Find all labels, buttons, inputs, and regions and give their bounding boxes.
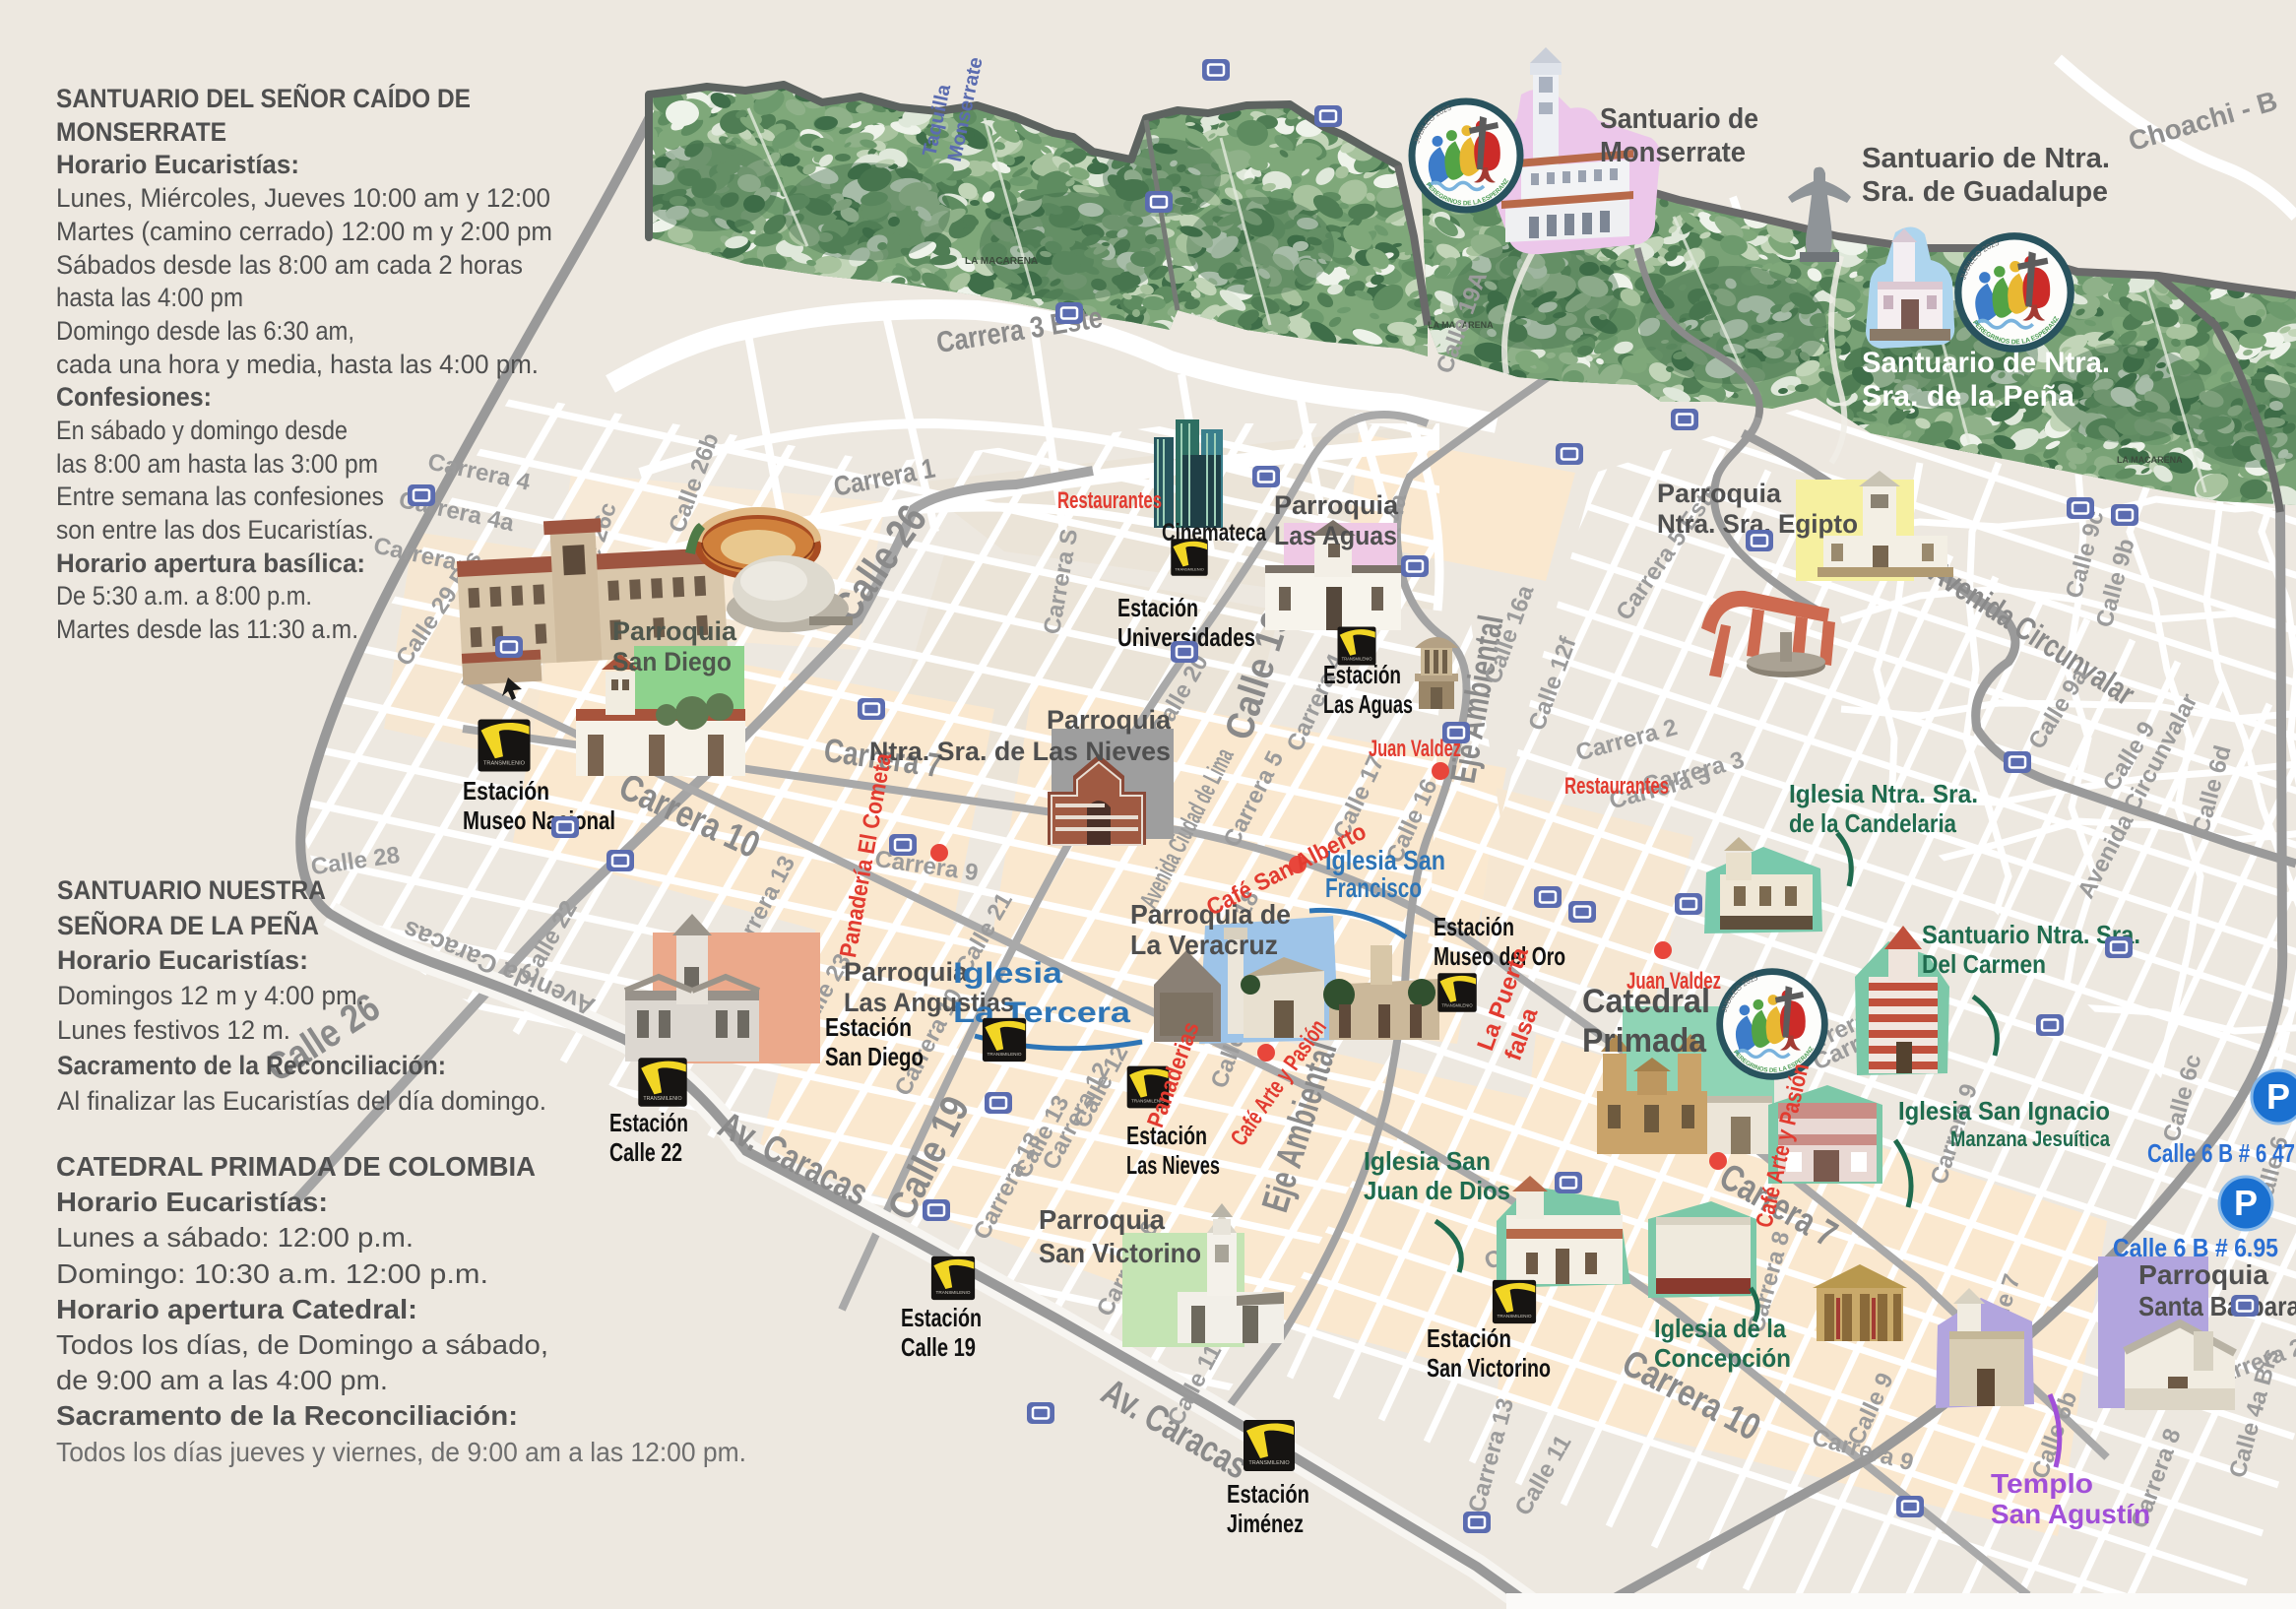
- svg-text:Santa Bárbara: Santa Bárbara: [2138, 1291, 2296, 1321]
- svg-text:Entre semana las confesiones: Entre semana las confesiones: [56, 482, 384, 511]
- svg-text:Parroquia: Parroquia: [612, 616, 737, 646]
- svg-text:Sra. de la Peña: Sra. de la Peña: [1862, 380, 2074, 413]
- svg-text:Del Carmen: Del Carmen: [1922, 949, 2046, 979]
- svg-text:Iglesia: Iglesia: [953, 957, 1062, 990]
- svg-text:San Agustín: San Agustín: [1991, 1499, 2150, 1529]
- svg-text:Todos los días, de Domingo a s: Todos los días, de Domingo a sábado,: [56, 1329, 548, 1360]
- svg-text:Las Aguas: Las Aguas: [1274, 521, 1397, 550]
- svg-text:Las Aguas: Las Aguas: [1323, 689, 1413, 719]
- svg-text:SANTUARIO NUESTRA: SANTUARIO NUESTRA: [57, 875, 326, 905]
- svg-text:Estación: Estación: [609, 1108, 688, 1137]
- svg-text:Santuario de Ntra.: Santuario de Ntra.: [1862, 143, 2110, 174]
- svg-text:En sábado y domingo desde: En sábado y domingo desde: [56, 416, 348, 445]
- svg-text:Martes desde las 11:30 a.m.: Martes desde las 11:30 a.m.: [56, 614, 358, 644]
- svg-text:De 5:30 a.m. a 8:00 p.m.: De 5:30 a.m. a 8:00 p.m.: [56, 581, 312, 611]
- svg-text:Restaurantes: Restaurantes: [1057, 487, 1162, 514]
- svg-text:Jiménez: Jiménez: [1227, 1509, 1304, 1538]
- svg-text:San Diego: San Diego: [825, 1042, 924, 1071]
- svg-text:Estación: Estación: [1323, 660, 1401, 689]
- svg-text:Estación: Estación: [1227, 1479, 1309, 1509]
- svg-text:Domingo desde las 6:30 am,: Domingo desde las 6:30 am,: [56, 316, 354, 346]
- svg-text:MONSERRATE: MONSERRATE: [56, 117, 226, 147]
- svg-text:Francisco: Francisco: [1325, 872, 1422, 903]
- svg-text:Domingo: 10:30 a.m. 12:00 p: Domingo: 10:30 a.m. 12:00 p.m.: [56, 1258, 488, 1289]
- svg-text:Lunes festivos 12 m.: Lunes festivos 12 m.: [57, 1015, 290, 1045]
- svg-text:Parroquia: Parroquia: [1047, 705, 1172, 735]
- svg-text:Templo: Templo: [1991, 1468, 2093, 1499]
- svg-text:Parroquia: Parroquia: [1039, 1204, 1165, 1235]
- svg-text:Sábados desde las 8:00 am cada: Sábados desde las 8:00 am cada 2 horas: [56, 250, 523, 280]
- svg-text:Al finalizar las Eucaristías d: Al finalizar las Eucaristías del día dom…: [57, 1086, 546, 1116]
- svg-text:cada una hora y media, hasta l: cada una hora y media, hasta las 4:00 pm…: [56, 350, 539, 379]
- svg-text:Primada: Primada: [1582, 1022, 1707, 1060]
- svg-text:San Diego: San Diego: [612, 647, 732, 676]
- svg-text:La Veracruz: La Veracruz: [1130, 930, 1278, 960]
- svg-text:de la Candelaria: de la Candelaria: [1789, 808, 1956, 838]
- svg-text:Ntra. Sra. de Las Nieves: Ntra. Sra. de Las Nieves: [869, 737, 1171, 766]
- svg-text:hasta las 4:00 pm: hasta las 4:00 pm: [56, 283, 243, 312]
- svg-text:Sacramento de la Reconciliació: Sacramento de la Reconciliación:: [56, 1400, 518, 1431]
- svg-text:La Tercera: La Tercera: [953, 997, 1130, 1029]
- svg-text:son entre las dos Eucaristías.: son entre las dos Eucaristías.: [56, 515, 374, 545]
- svg-text:LA MACARENA: LA MACARENA: [965, 256, 1038, 267]
- svg-text:Restaurantes: Restaurantes: [1564, 773, 1669, 800]
- svg-text:Concepción: Concepción: [1654, 1343, 1791, 1373]
- svg-text:Calle 22: Calle 22: [609, 1137, 682, 1167]
- svg-text:Estación: Estación: [825, 1012, 912, 1042]
- svg-text:Lunes, Miércoles, Jueves 10:0: Lunes, Miércoles, Jueves 10:00 am y 12:0…: [56, 183, 550, 213]
- svg-text:de 9:00 am a las 4:00 pm.: de 9:00 am a las 4:00 pm.: [56, 1365, 388, 1395]
- svg-text:Estación: Estación: [1427, 1323, 1511, 1353]
- svg-text:Horario apertura Catedral:: Horario apertura Catedral:: [56, 1294, 417, 1324]
- svg-text:las 8:00 am hasta las 3:00 pm: las 8:00 am hasta las 3:00 pm: [56, 449, 378, 479]
- svg-text:Monserrate: Monserrate: [1600, 137, 1746, 168]
- svg-text:San Victorino: San Victorino: [1427, 1353, 1551, 1383]
- svg-text:Las Nieves: Las Nieves: [1126, 1150, 1220, 1180]
- svg-text:Sacramento de la Reconciliació: Sacramento de la Reconciliación:: [57, 1051, 446, 1080]
- svg-text:Iglesia San Ignacio: Iglesia San Ignacio: [1898, 1096, 2110, 1126]
- svg-text:Confesiones:: Confesiones:: [56, 382, 212, 412]
- svg-text:Todos los días jueves y vierne: Todos los días jueves y viernes, de 9:00…: [56, 1437, 746, 1467]
- svg-text:Calle 6 B # 6 47: Calle 6 B # 6 47: [2147, 1138, 2295, 1168]
- svg-text:Calle 6 B # 6.95: Calle 6 B # 6.95: [2113, 1233, 2278, 1262]
- svg-text:LA MACARENA: LA MACARENA: [2117, 455, 2183, 465]
- svg-text:Sra. de Guadalupe: Sra. de Guadalupe: [1862, 176, 2108, 208]
- svg-text:Horario Eucaristías:: Horario Eucaristías:: [57, 945, 308, 975]
- svg-text:Lunes a sábado: 12:00 p.m.: Lunes a sábado: 12:00 p.m.: [56, 1222, 414, 1253]
- svg-text:Horario apertura basílica:: Horario apertura basílica:: [56, 548, 365, 578]
- svg-text:Domingos 12 m y 4:00 pm.: Domingos 12 m y 4:00 pm.: [57, 981, 364, 1010]
- svg-text:Manzana Jesuítica: Manzana Jesuítica: [1950, 1126, 2111, 1151]
- svg-text:Parroquia: Parroquia: [2138, 1259, 2268, 1290]
- svg-text:Estación: Estación: [901, 1303, 982, 1332]
- svg-text:Iglesia San: Iglesia San: [1364, 1146, 1491, 1176]
- svg-text:Santuario de: Santuario de: [1600, 103, 1758, 135]
- svg-text:Parroquia: Parroquia: [1657, 479, 1782, 508]
- svg-text:Museo Nacional: Museo Nacional: [463, 805, 615, 835]
- svg-text:Juan Valdez: Juan Valdez: [1626, 968, 1721, 995]
- svg-text:CATEDRAL PRIMADA DE COLOMBIA: CATEDRAL PRIMADA DE COLOMBIA: [56, 1151, 536, 1182]
- svg-text:Horario Eucaristías:: Horario Eucaristías:: [56, 1187, 328, 1217]
- svg-text:SEÑORA DE LA PEÑA: SEÑORA DE LA PEÑA: [57, 910, 319, 940]
- svg-text:Parroquia: Parroquia: [1274, 490, 1399, 520]
- svg-text:Horario Eucaristías:: Horario Eucaristías:: [56, 150, 299, 179]
- svg-text:Santuario de Ntra.: Santuario de Ntra.: [1862, 347, 2110, 379]
- svg-text:San Victorino: San Victorino: [1039, 1238, 1201, 1268]
- svg-text:Estación: Estación: [1117, 593, 1198, 622]
- svg-text:Iglesia de la: Iglesia de la: [1654, 1314, 1786, 1343]
- svg-text:Juan de Dios: Juan de Dios: [1364, 1176, 1510, 1205]
- svg-text:Martes (camino cerrado) 12:00: Martes (camino cerrado) 12:00 m y 2:00 p…: [56, 217, 552, 246]
- svg-text:Parroquia: Parroquia: [844, 957, 969, 987]
- svg-text:Estación: Estación: [463, 776, 549, 805]
- svg-text:Museo del Oro: Museo del Oro: [1434, 941, 1565, 971]
- svg-text:Calle 19: Calle 19: [901, 1332, 976, 1362]
- svg-text:SANTUARIO DEL SEÑOR CAÍDO DE: SANTUARIO DEL SEÑOR CAÍDO DE: [56, 83, 471, 113]
- svg-text:Iglesia Ntra. Sra.: Iglesia Ntra. Sra.: [1789, 779, 1978, 808]
- svg-text:Estación: Estación: [1434, 912, 1514, 941]
